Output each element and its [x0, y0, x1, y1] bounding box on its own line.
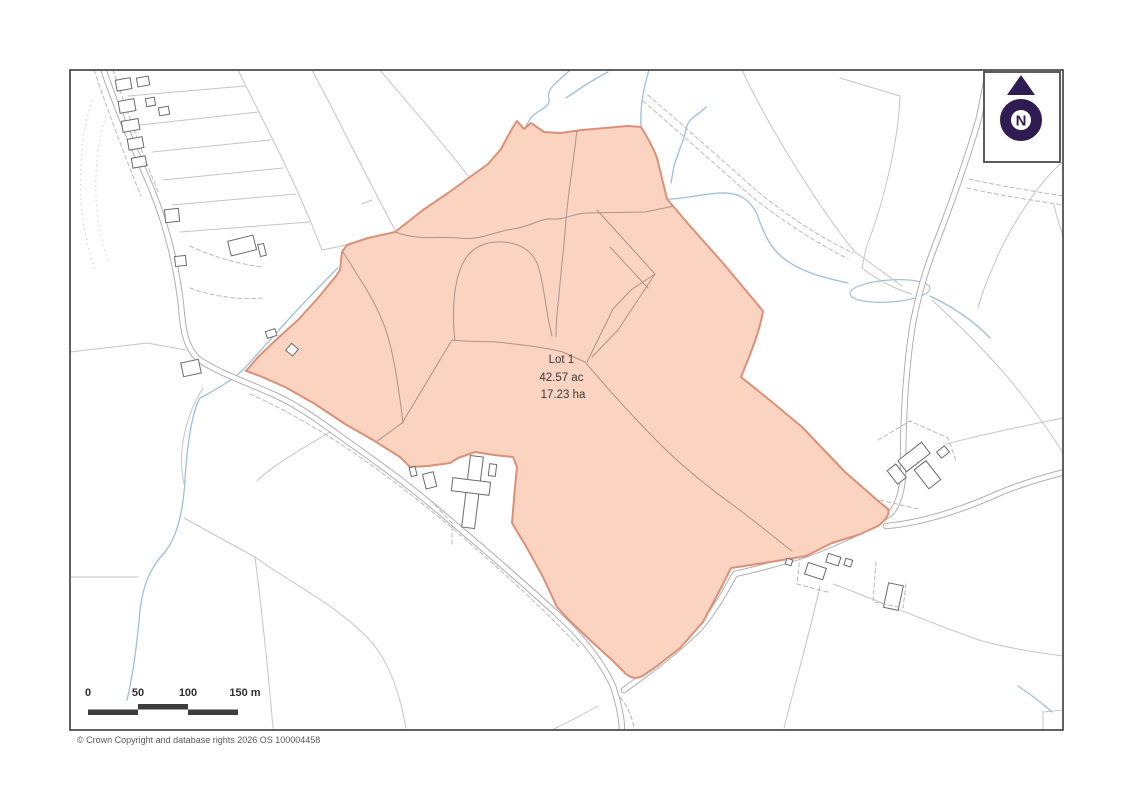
svg-text:50: 50 — [132, 687, 144, 699]
site-plan-page: Lot 1 42.57 ac 17.23 ha 0 50 100 150 m N… — [0, 0, 1133, 800]
scale-bar-segment — [188, 710, 238, 716]
scale-bar-segment — [88, 710, 138, 716]
svg-text:150 m: 150 m — [229, 687, 260, 699]
svg-text:0: 0 — [85, 687, 91, 699]
site-plan-svg: Lot 1 42.57 ac 17.23 ha 0 50 100 150 m N… — [0, 0, 1133, 800]
scale-bar-segment — [138, 704, 188, 710]
north-letter: N — [1016, 113, 1027, 130]
attribution-text: © Crown Copyright and database rights 20… — [77, 735, 320, 745]
north-arrow-icon: N — [984, 72, 1060, 162]
svg-text:100: 100 — [179, 687, 197, 699]
